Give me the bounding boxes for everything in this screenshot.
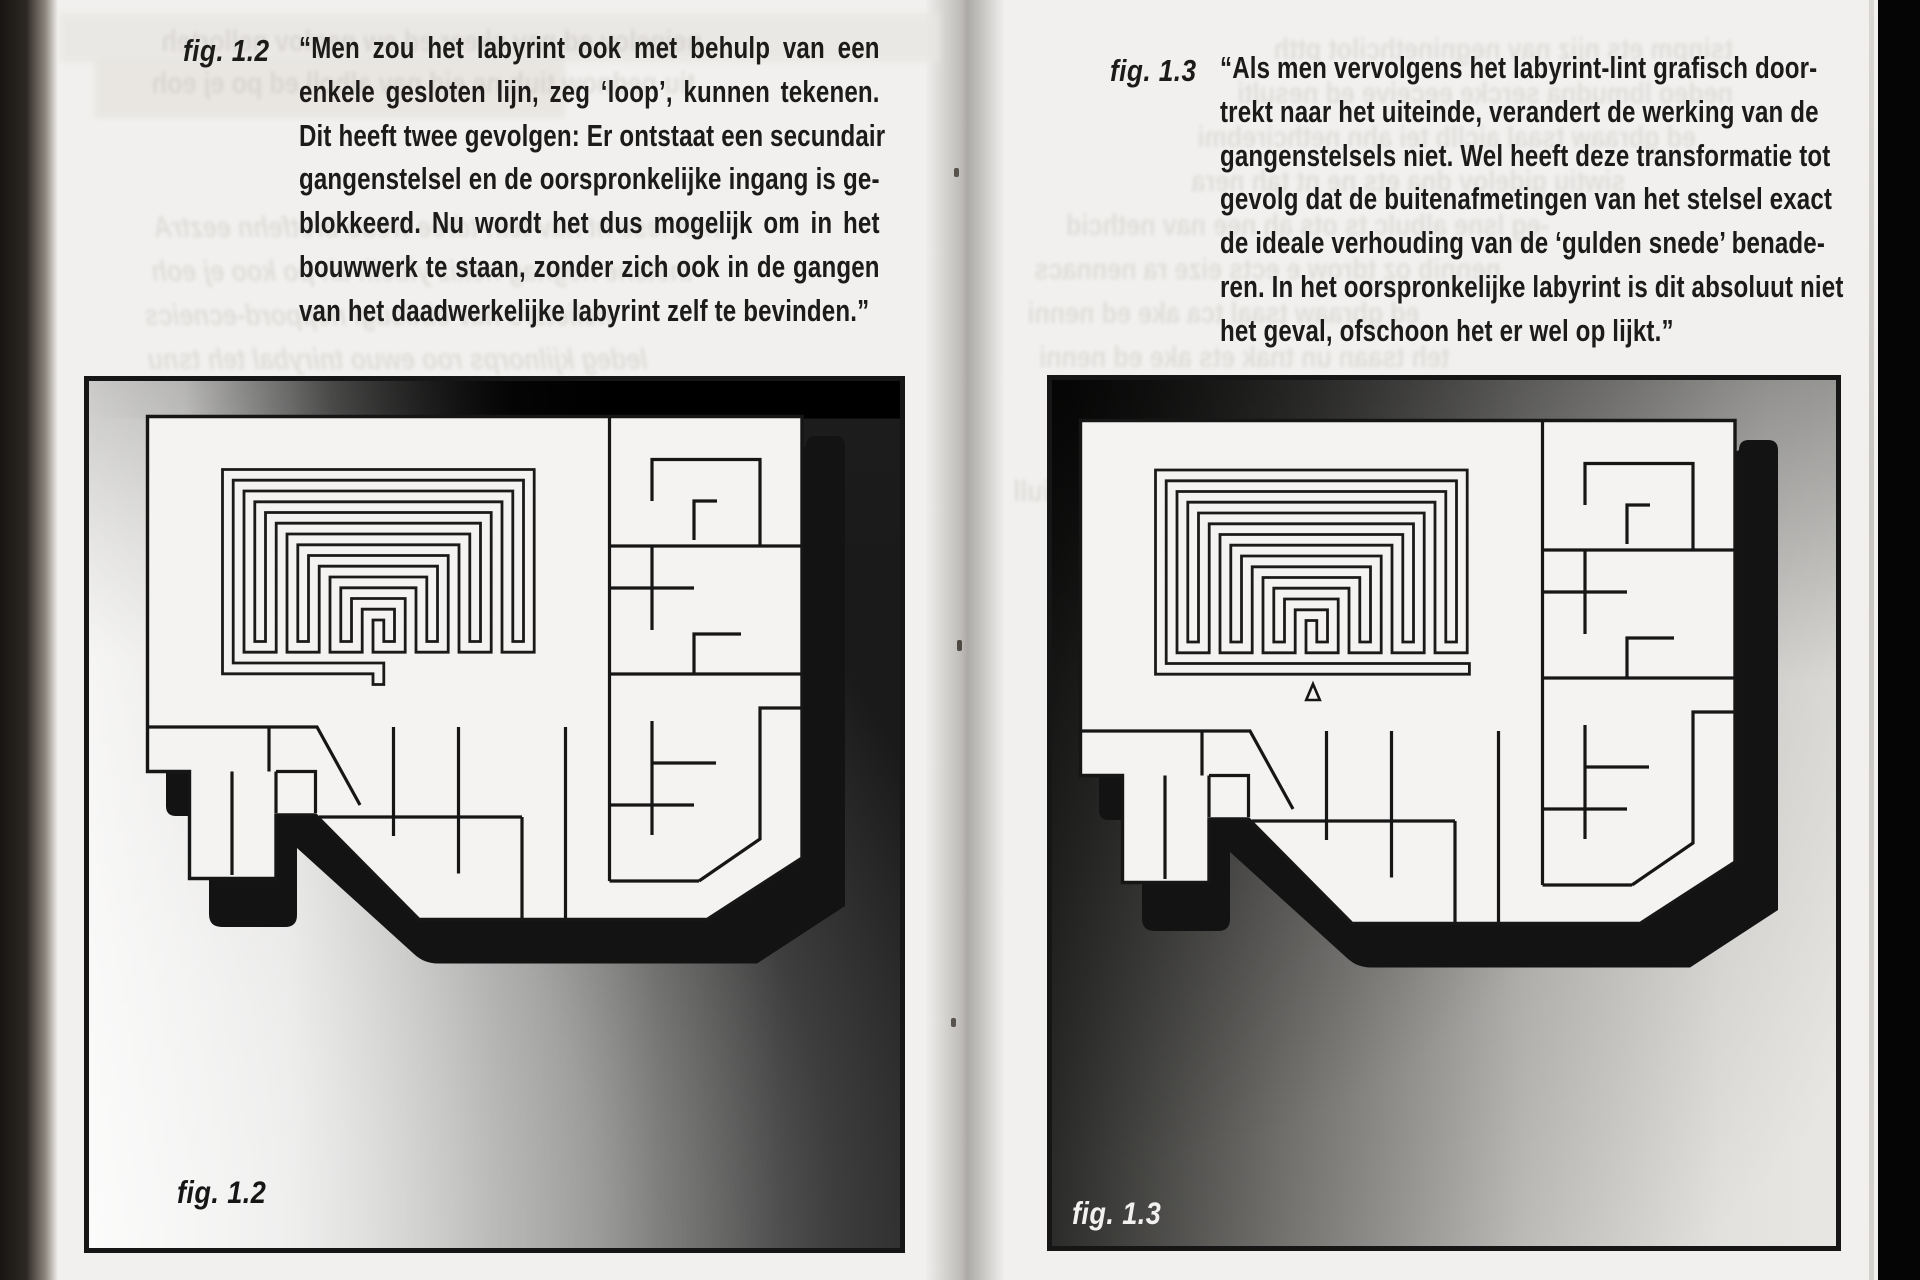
- svg-text:fig. 1.3: fig. 1.3: [1072, 1196, 1161, 1231]
- svg-text:fig. 1.2: fig. 1.2: [177, 1175, 266, 1210]
